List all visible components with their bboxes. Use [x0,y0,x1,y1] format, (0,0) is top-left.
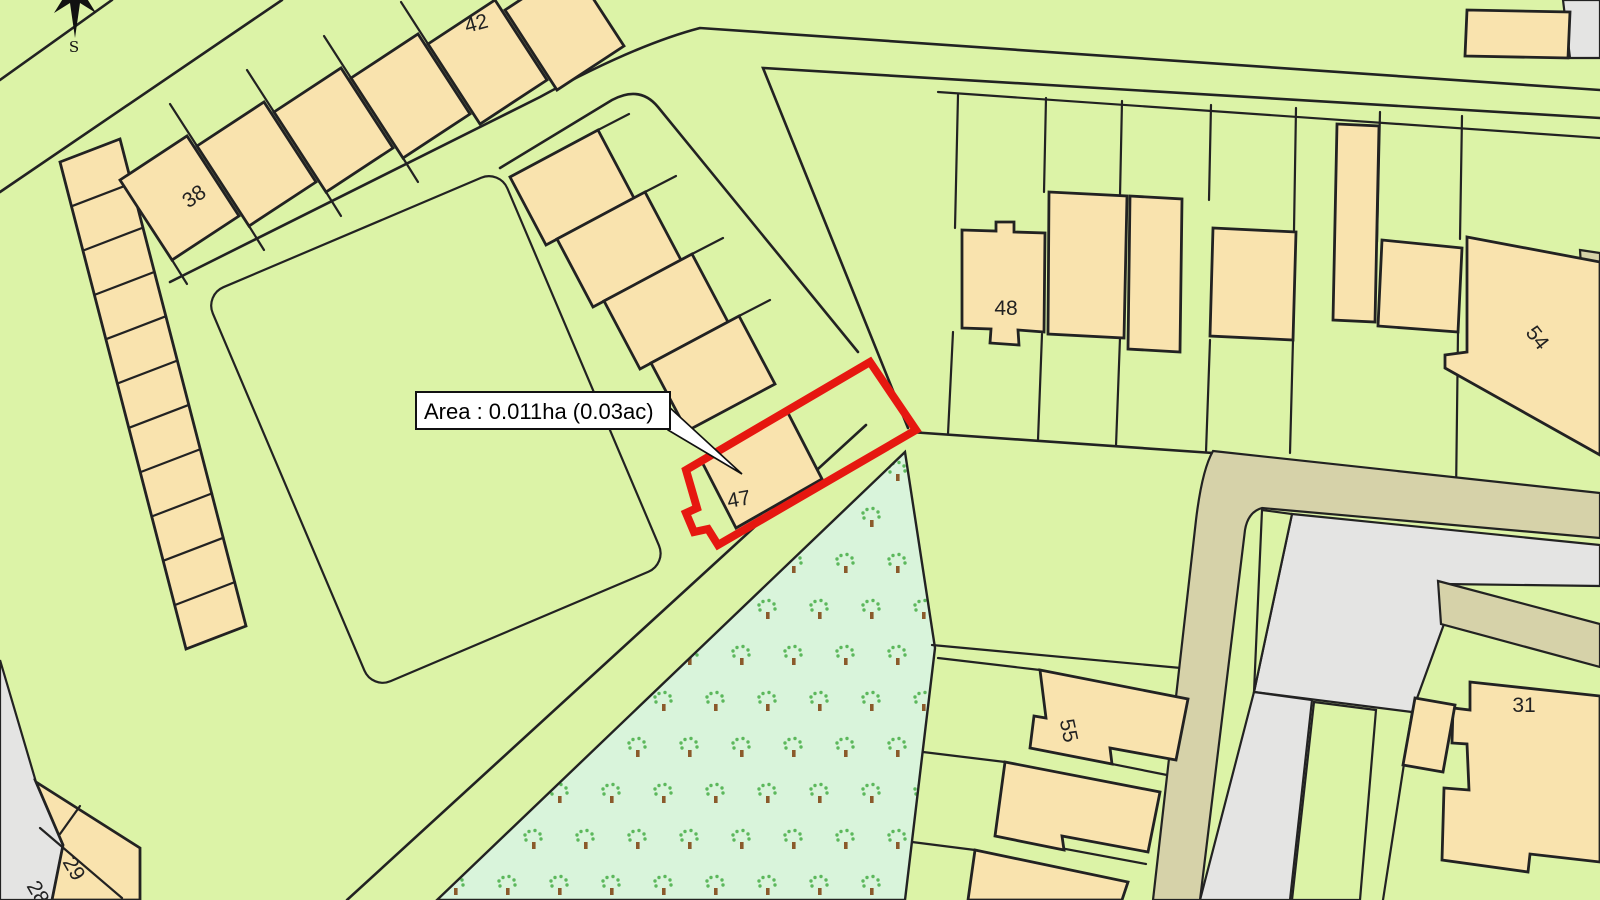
annotation-text: Area : 0.011ha (0.03ac) [424,399,654,424]
plot-label-31: 31 [1512,694,1535,717]
plot-label-47: 47 [725,486,752,513]
site-plan-map[interactable]: S 42 38 47 48 54 55 31 29 28 Area : 0.01… [0,0,1600,900]
plot-label-55: 55 [1055,717,1082,745]
map-viewport[interactable]: S 42 38 47 48 54 55 31 29 28 Area : 0.01… [0,0,1600,900]
compass-south-label: S [69,38,79,56]
plot-label-48: 48 [994,297,1017,320]
